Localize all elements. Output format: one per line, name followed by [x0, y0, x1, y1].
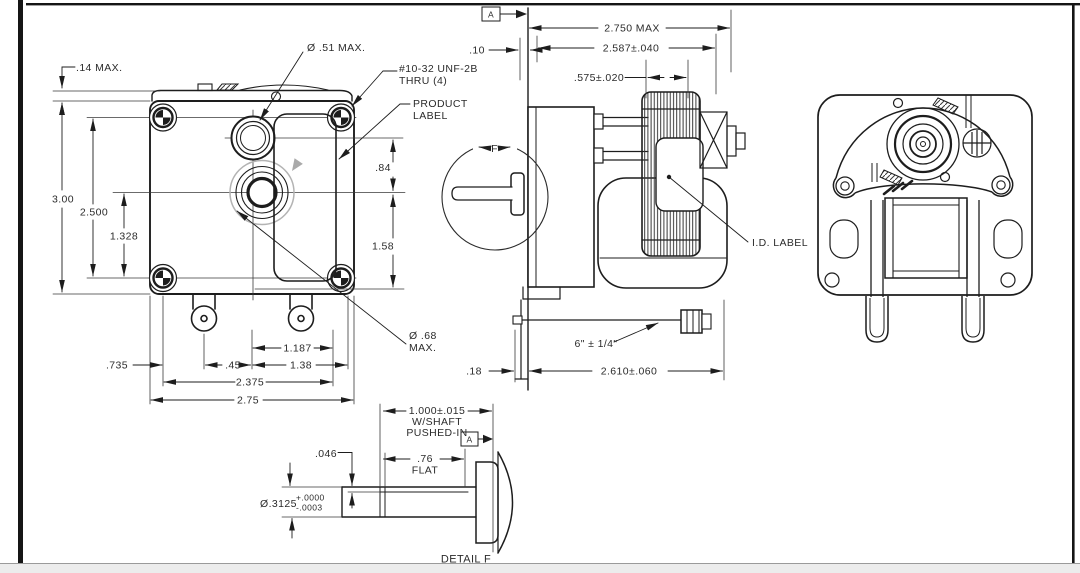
dim-terminal-right: 1.38 — [290, 360, 312, 372]
rear-plate-cutouts — [830, 220, 1022, 258]
dim-mount-horizontal: 2.375 — [236, 377, 264, 389]
dim-flat-length-line1: .76 — [417, 453, 433, 465]
rear-plate — [818, 95, 1032, 295]
rear-stator-square — [885, 198, 967, 278]
dim-boss-diameter: Ø .51 MAX. — [307, 42, 365, 54]
dim-hub-diameter-line1: Ø .68 — [409, 330, 437, 342]
dim-depth: 2.587±.040 — [603, 43, 659, 55]
dim-flat-length-line2: FLAT — [412, 465, 439, 477]
side-bracket-foot — [515, 300, 528, 379]
dim-overall-height: 3.00 — [52, 194, 74, 206]
front-view: .14 MAX. Ø .51 MAX. #10-32 UNF-2B THRU (… — [52, 42, 478, 407]
detail-marker-F: F — [491, 143, 498, 155]
terminals — [192, 294, 314, 331]
rear-bearing-boss — [887, 108, 959, 180]
lead-wire — [513, 316, 681, 324]
window-chrome-bar — [0, 563, 1080, 573]
output-shaft-side — [452, 173, 524, 215]
drawing-sheet: .14 MAX. Ø .51 MAX. #10-32 UNF-2B THRU (… — [0, 0, 1080, 573]
dim-terminal-offset: .45 — [225, 360, 241, 372]
dim-shaft-diameter-tol-minus: -.0003 — [296, 503, 323, 513]
rear-strap — [833, 108, 1012, 198]
thread-callout-line2: THRU (4) — [399, 75, 447, 87]
dim-shaft-diameter-tol-plus: +.0000 — [296, 493, 325, 503]
dim-shaft-diameter: Ø.3125 — [260, 498, 297, 510]
dim-foot-depth: .18 — [466, 366, 482, 378]
dim-body-depth: 2.610±.060 — [601, 366, 657, 378]
rear-plate-holes — [825, 99, 1015, 288]
rear-switch-port — [963, 129, 991, 157]
dim-shaft-to-bottom: 1.58 — [372, 241, 394, 253]
rear-bracket — [700, 112, 745, 168]
terminal-block — [681, 310, 711, 333]
id-label-callout: I.D. LABEL — [752, 237, 808, 249]
product-label-callout-line1: PRODUCT — [413, 98, 468, 110]
datum-label: A — [488, 10, 494, 20]
top-boss — [232, 117, 275, 160]
dim-top-clearance: .14 MAX. — [76, 62, 122, 74]
detail-view: A 1.000±.015 W/SHAFT PUSHED-IN .046 .76 … — [260, 404, 513, 566]
rear-view — [818, 95, 1032, 342]
gearbox-side — [523, 107, 594, 299]
dim-overall-width: 2.75 — [237, 395, 259, 407]
dim-shaft-height: 1.328 — [110, 231, 138, 243]
dim-terminal-spacing: 1.187 — [283, 343, 311, 355]
dim-boss-to-shaft: .84 — [375, 162, 391, 174]
dim-depth-max: 2.750 MAX — [604, 23, 660, 35]
dim-edge-terminal: .735 — [106, 360, 128, 372]
dim-standoff: .10 — [469, 45, 485, 57]
product-label-callout-line2: LABEL — [413, 110, 448, 122]
detail-knob — [476, 452, 513, 553]
side-view: F I.D. LABEL — [442, 7, 808, 390]
thread-callout-line1: #10-32 UNF-2B — [399, 63, 478, 75]
screw-icon — [150, 104, 177, 131]
dim-hub-diameter-line2: MAX. — [409, 342, 436, 354]
tie-rods — [594, 114, 648, 163]
engineering-drawing: .14 MAX. Ø .51 MAX. #10-32 UNF-2B THRU (… — [0, 0, 1080, 573]
screw-icon — [150, 265, 177, 292]
dim-lead-length: 6" ± 1/4" — [574, 338, 617, 350]
front-housing-top-profile — [152, 84, 352, 101]
dim-flat-depth: .046 — [315, 448, 337, 460]
dim-shaft-extension-line3: PUSHED-IN — [406, 427, 467, 439]
dim-stack-length: .575±.020 — [574, 72, 624, 84]
dim-mount-vertical: 2.500 — [80, 207, 108, 219]
id-label-outline — [656, 138, 703, 211]
detail-shaft — [342, 487, 476, 517]
